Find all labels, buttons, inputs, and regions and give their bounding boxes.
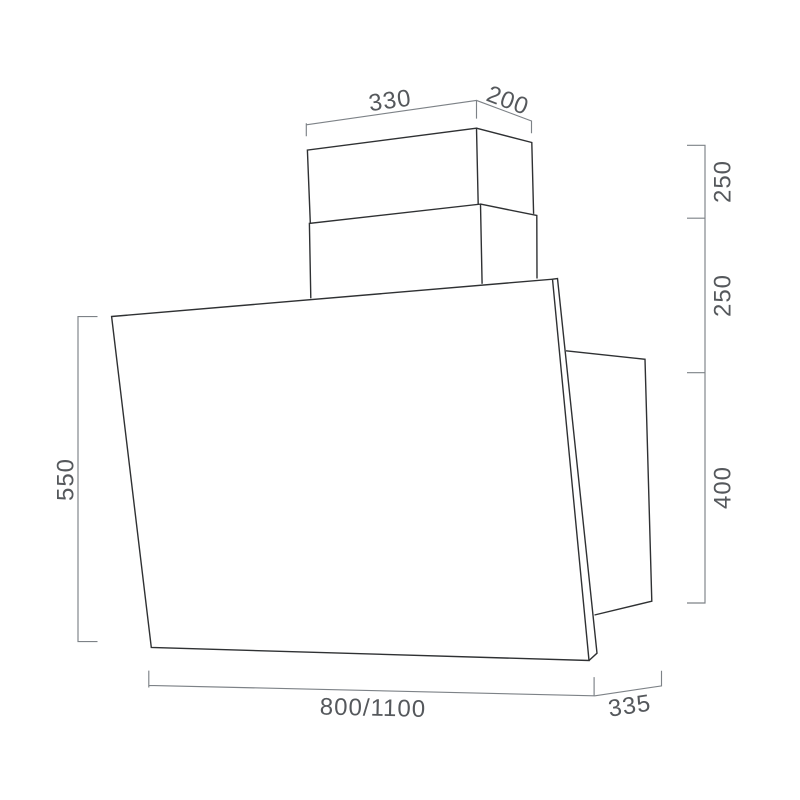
svg-text:400: 400 [710,466,737,509]
svg-text:250: 250 [710,160,737,203]
svg-text:550: 550 [53,458,80,501]
svg-text:800/1100: 800/1100 [320,693,427,722]
svg-text:250: 250 [710,274,737,317]
